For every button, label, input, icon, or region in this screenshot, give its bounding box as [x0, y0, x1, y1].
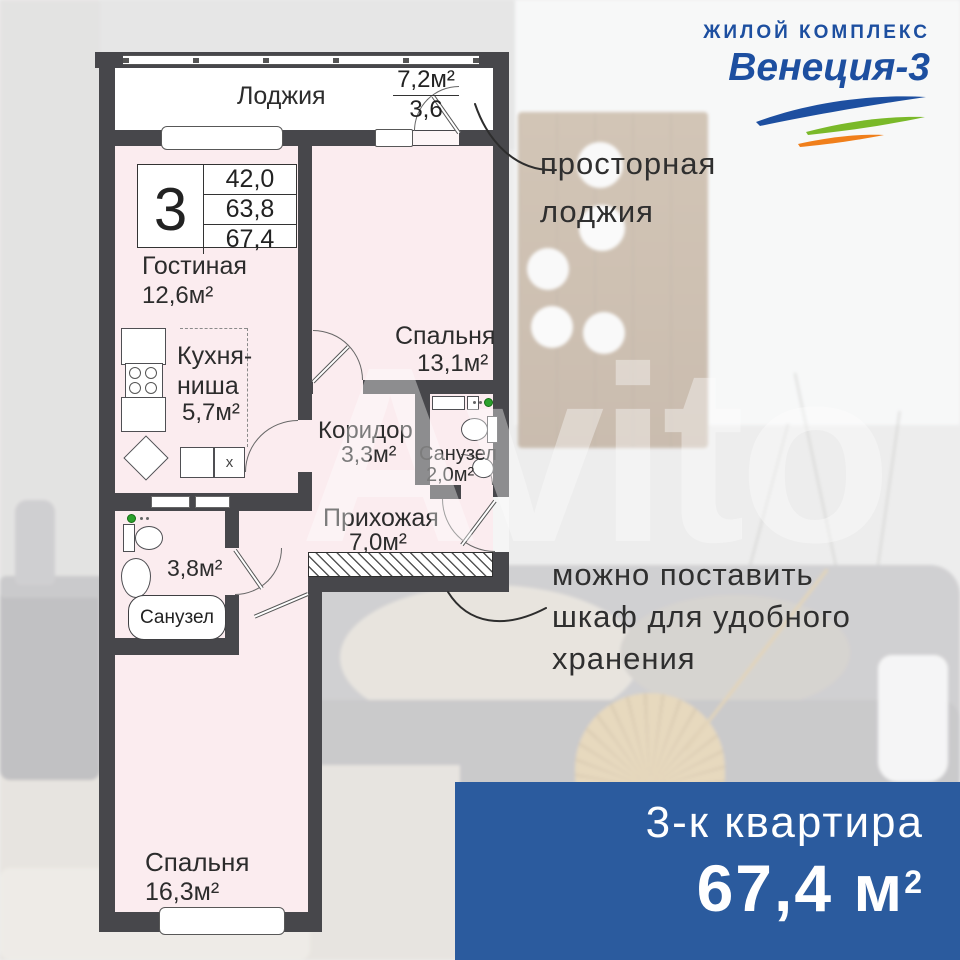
vent-mini-dot: [146, 517, 149, 520]
area-total-value: 67,4: [204, 225, 296, 254]
wardrobe-note-line2: шкаф для удобного: [552, 596, 851, 638]
loggia-note: просторная лоджия: [540, 140, 716, 236]
room-label-kitchen-line2: ниша: [177, 373, 239, 401]
logo-swoosh-icon: [750, 92, 930, 148]
loggia-area-fraction: 7,2м² 3,6: [393, 66, 459, 124]
swoosh-orange: [798, 135, 884, 147]
vent-shaft: [195, 496, 230, 508]
kitchen-niche-dashed-line: [180, 328, 247, 329]
room-area-kitchen: 5,7м²: [182, 400, 240, 426]
apartment-area-value: 67,4 м2: [455, 850, 924, 926]
room-label-bathroom-main: Санузел: [140, 607, 214, 629]
kitchen-box: [180, 447, 214, 478]
wall-bath1-right-lower: [225, 595, 239, 642]
stove-burner: [129, 367, 141, 379]
wardrobe-note-line3: хранения: [552, 638, 851, 680]
loggia-area-reduced: 3,6: [393, 96, 459, 124]
logo-subtitle: ЖИЛОЙ КОМПЛЕКС: [600, 22, 930, 44]
swoosh-green: [806, 117, 925, 135]
wardrobe-note: можно поставить шкаф для удобного хранен…: [552, 554, 851, 680]
area-number: 67,4 м: [697, 851, 905, 925]
wall-bath1-bottom: [115, 638, 239, 655]
room-label-loggia: Лоджия: [237, 83, 326, 111]
loggia-area-full: 7,2м²: [393, 66, 459, 96]
kitchen-counter: [121, 397, 166, 432]
balcony-door-opening: [413, 131, 459, 145]
stove-burner: [129, 382, 141, 394]
area-living-value: 42,0: [204, 165, 296, 195]
toilet-tank-icon: [123, 524, 135, 552]
vent-mini-dot: [140, 517, 143, 520]
apartment-banner: 3-к квартира 67,4 м2: [455, 782, 960, 960]
area-superscript: 2: [904, 864, 924, 900]
bedroom-window-top: [375, 129, 413, 147]
loggia-note-line2: лоджия: [540, 188, 716, 236]
room-area-bedroom-bottom: 16,3м²: [145, 879, 219, 907]
apartment-type-label: 3-к квартира: [455, 798, 924, 848]
wardrobe-note-line1: можно поставить: [552, 554, 851, 596]
complex-logo: ЖИЛОЙ КОМПЛЕКС Венеция-3: [600, 22, 930, 153]
watermark-text: Avito: [300, 330, 886, 580]
room-label-living: Гостиная: [142, 253, 247, 281]
room-label-kitchen-line1: Кухня-: [177, 343, 252, 371]
vent-dot: [127, 514, 136, 523]
loggia-window-band: [123, 55, 479, 65]
vent-shaft: [151, 496, 190, 508]
logo-title: Венеция-3: [600, 46, 930, 90]
stove-burner: [145, 382, 157, 394]
room-area-living: 12,6м²: [142, 283, 213, 309]
wall-bath1-right-upper: [225, 511, 239, 548]
toilet-bowl-icon: [135, 526, 163, 550]
room-label-bedroom-bottom: Спальня: [145, 848, 249, 877]
stove-burner: [145, 367, 157, 379]
area-badge: 3 42,0 63,8 67,4: [137, 164, 297, 248]
wall-left: [99, 52, 115, 932]
rooms-count: 3: [138, 165, 204, 254]
bedroom2-window: [159, 907, 285, 935]
window-mullions: [123, 58, 479, 63]
fridge-box-mark: х: [226, 454, 234, 471]
room-area-bathroom-main: 3,8м²: [167, 556, 222, 581]
wall-bedroom2-right: [308, 592, 322, 932]
stove-icon: [125, 363, 163, 399]
bathtub-icon: Санузел: [128, 595, 226, 640]
fridge-box: х: [214, 447, 245, 478]
advertisement-canvas: Avito: [0, 0, 960, 960]
living-room-window: [161, 126, 283, 150]
area-main-value: 63,8: [204, 195, 296, 225]
kitchen-counter: [121, 328, 166, 365]
